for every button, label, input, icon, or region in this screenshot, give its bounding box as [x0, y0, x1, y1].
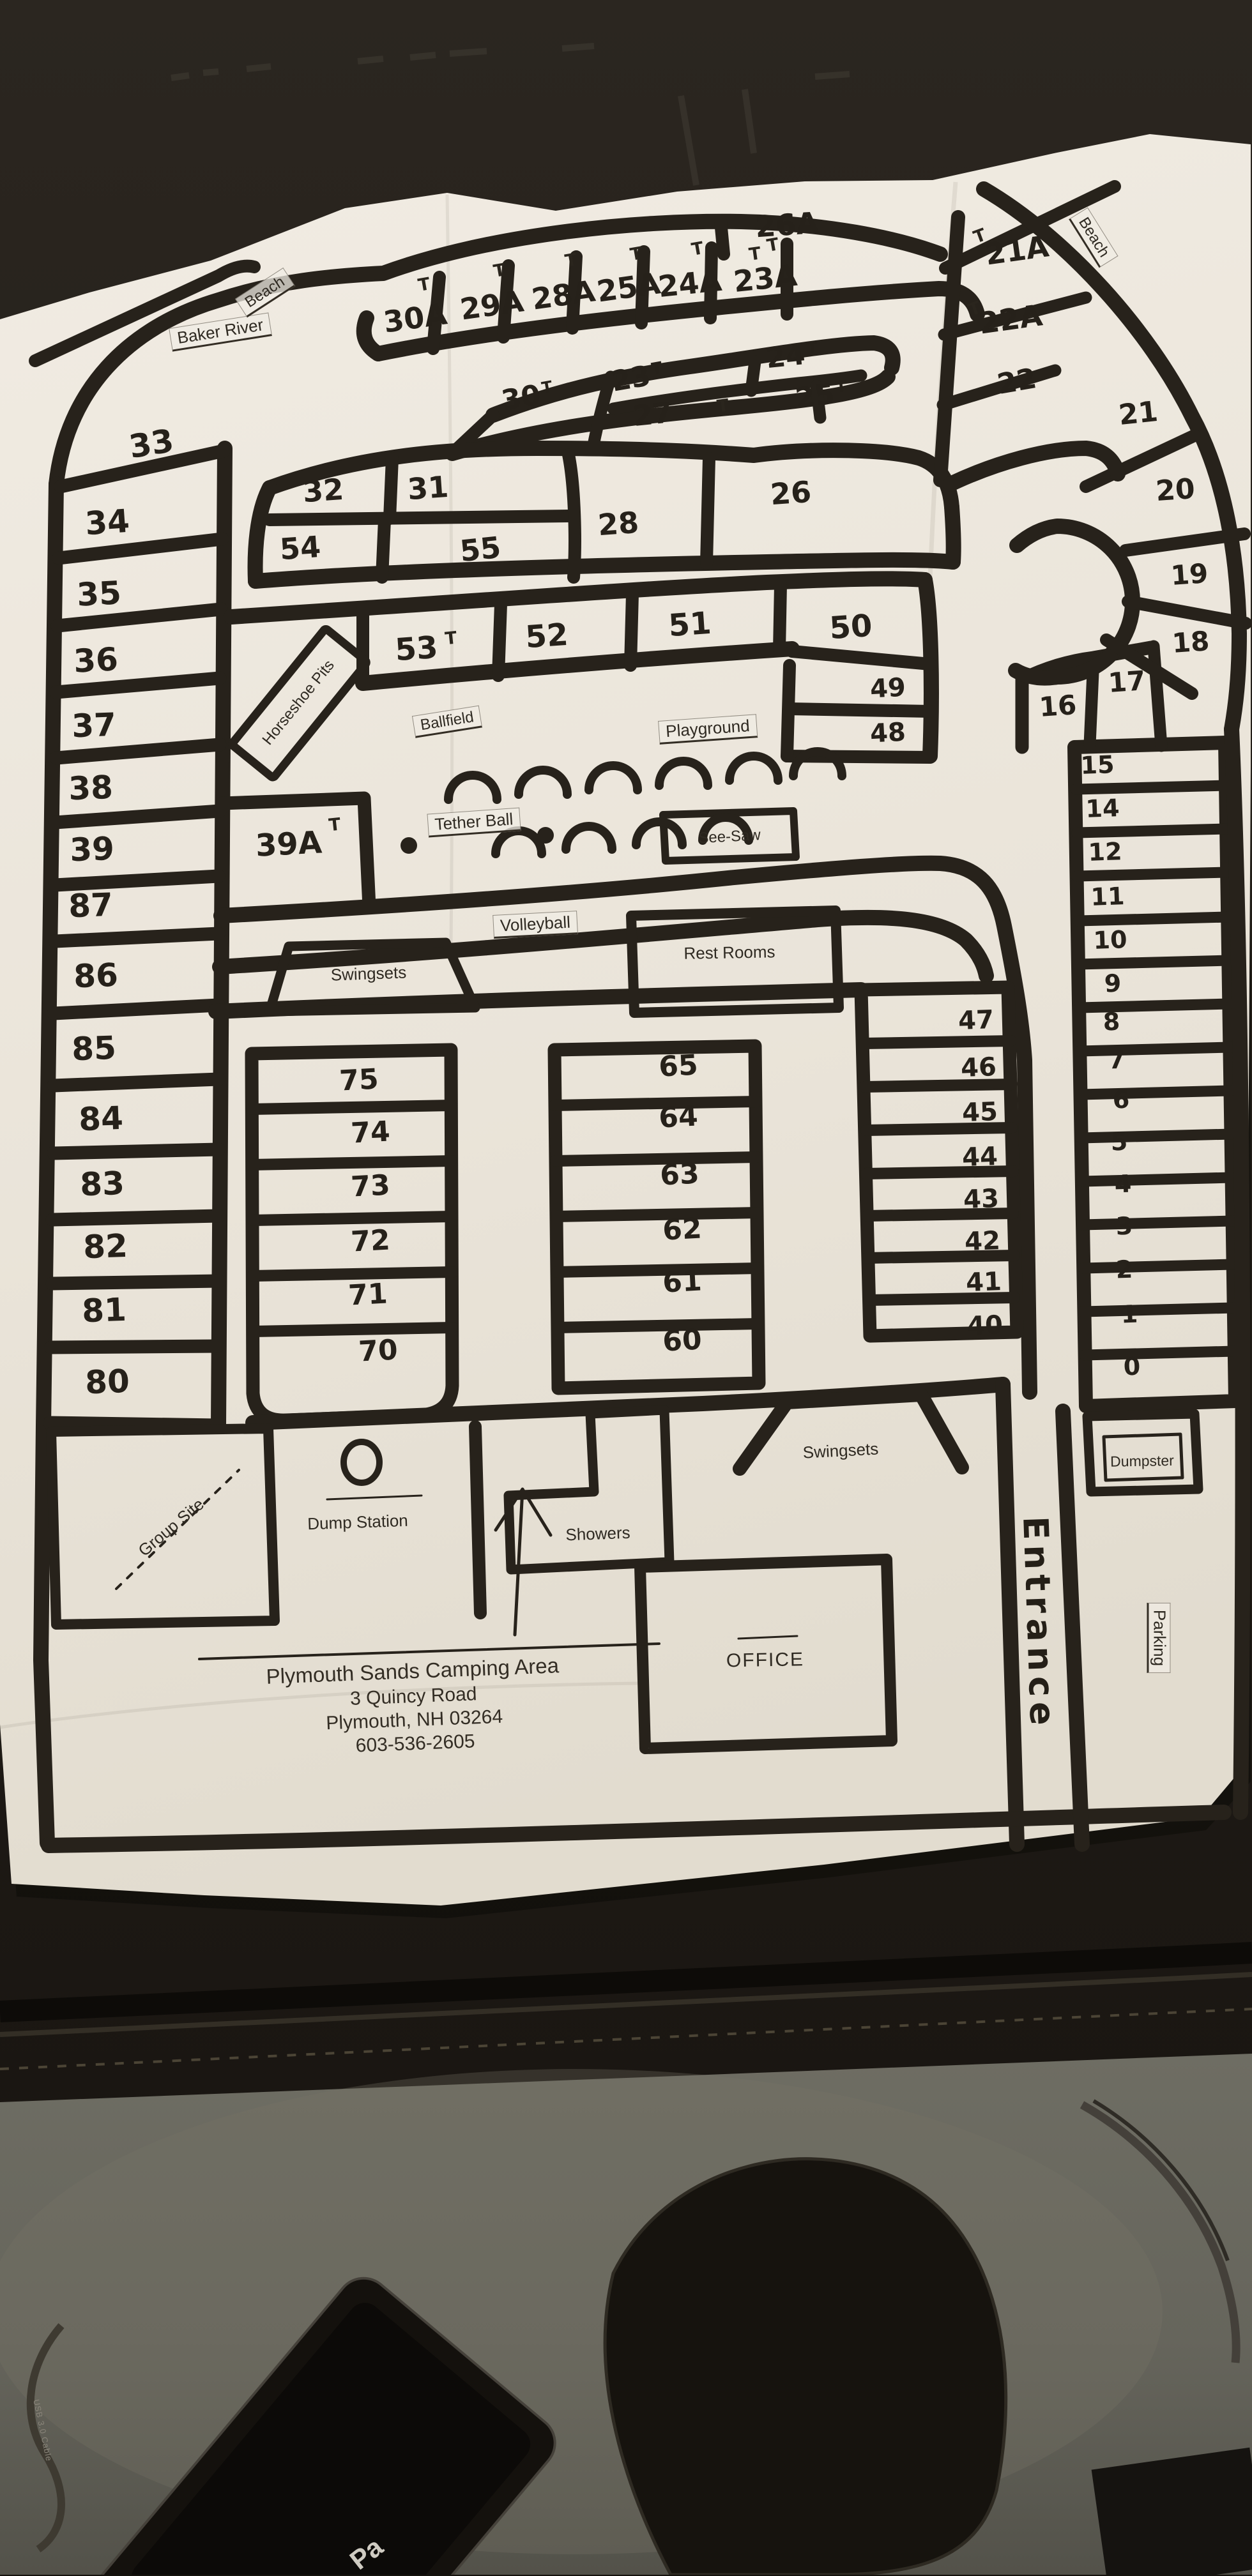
site-label-33: 33: [127, 425, 176, 463]
site-label-81: 81: [81, 1294, 126, 1327]
site-label-21A: 21A: [983, 231, 1050, 269]
site-label-25T: 25T: [793, 379, 849, 414]
site-label-38: 38: [68, 771, 113, 805]
label-parking: Parking: [1147, 1603, 1171, 1673]
site-label-53: 53: [394, 632, 439, 666]
site-label-29A: 29A: [458, 286, 525, 324]
site-label-55: 55: [459, 533, 502, 566]
tent-marker: T: [540, 378, 554, 397]
site-label-14: 14: [1085, 796, 1120, 821]
tent-marker: T: [417, 275, 432, 294]
site-label-63: 63: [659, 1160, 699, 1190]
site-number: 24: [765, 338, 807, 375]
site-label-87: 87: [68, 889, 113, 922]
site-label-50: 50: [828, 610, 873, 644]
label-beach-right: Beach: [1069, 208, 1118, 268]
label-volleyball: Volleyball: [492, 911, 578, 939]
site-label-26A: 26A: [754, 208, 820, 242]
tent-marker: T: [492, 261, 507, 280]
site-label-42: 42: [964, 1228, 1000, 1255]
site-label-8: 8: [1103, 1010, 1120, 1034]
site-label-32: 32: [302, 474, 344, 506]
site-label-48: 48: [869, 720, 906, 747]
site-label-64: 64: [658, 1102, 698, 1132]
site-number: 30: [499, 379, 543, 418]
site-label-85: 85: [71, 1032, 116, 1065]
label-office: OFFICE: [720, 1648, 811, 1673]
site-number: 25: [793, 377, 837, 415]
site-label-84: 84: [78, 1102, 123, 1135]
site-label-39: 39: [69, 833, 114, 866]
site-label-74: 74: [350, 1118, 390, 1148]
tent-marker: T: [748, 245, 762, 263]
tent-marker: T: [564, 251, 579, 270]
label-tether-ball: Tether Ball: [427, 808, 521, 838]
site-label-62: 62: [662, 1215, 702, 1245]
label-entrance: Entrance: [1018, 1516, 1060, 1731]
site-label-47: 47: [958, 1007, 994, 1034]
site-label-80: 80: [84, 1365, 130, 1398]
site-label-21: 21: [1117, 398, 1159, 430]
site-label-27: 27: [632, 399, 673, 431]
site-label-61: 61: [662, 1267, 702, 1297]
site-label-22A: 22A: [977, 300, 1044, 338]
site-label-1: 1: [1120, 1302, 1138, 1327]
site-label-28A: 28A: [530, 276, 597, 314]
label-swingsets-upper: Swingsets: [324, 962, 413, 986]
tent-marker: T: [716, 397, 730, 415]
cable-print-text: USB 3.0 Cable: [31, 2398, 54, 2462]
site-label-10: 10: [1093, 927, 1127, 953]
site-label-4: 4: [1114, 1172, 1132, 1197]
site-label-83: 83: [79, 1167, 125, 1201]
site-label-70: 70: [358, 1336, 398, 1366]
tent-marker: T: [972, 226, 989, 246]
site-label-6: 6: [1112, 1087, 1130, 1112]
site-label-39A: 39A: [255, 827, 323, 861]
label-group-site: Group Site: [129, 1490, 213, 1565]
tent-marker: T: [629, 245, 644, 264]
site-label-9: 9: [1104, 971, 1122, 996]
tent-marker: T: [650, 359, 664, 378]
site-label-60: 60: [662, 1326, 702, 1356]
label-showers: Showers: [559, 1522, 637, 1545]
site-label-12: 12: [1088, 839, 1122, 865]
site-label-40: 40: [966, 1312, 1003, 1339]
site-label-28: 28: [597, 508, 639, 540]
site-label-20: 20: [1155, 475, 1196, 506]
site-label-65: 65: [658, 1051, 698, 1081]
site-label-2: 2: [1115, 1257, 1133, 1282]
site-label-37: 37: [71, 709, 116, 742]
label-see-saw: See-Saw: [692, 825, 768, 849]
site-label-71: 71: [347, 1280, 388, 1310]
site-label-11: 11: [1090, 884, 1125, 909]
site-label-46: 46: [960, 1054, 996, 1081]
site-label-23A: 23A: [732, 261, 798, 296]
label-rest-rooms: Rest Rooms: [677, 941, 782, 964]
label-dump-station: Dump Station: [301, 1510, 415, 1534]
site-label-35: 35: [76, 577, 122, 611]
site-label-30T: 30T: [500, 379, 556, 416]
site-label-72: 72: [350, 1226, 390, 1256]
tent-marker: T: [835, 377, 848, 397]
site-label-43: 43: [963, 1186, 999, 1213]
site-label-25A: 25A: [595, 268, 662, 306]
site-label-52: 52: [524, 619, 569, 653]
address-block: Plymouth Sands Camping Area 3 Quincy Roa…: [169, 1649, 658, 1766]
site-label-36: 36: [73, 643, 119, 678]
site-label-30A: 30A: [381, 299, 448, 337]
site-label-31: 31: [406, 472, 449, 504]
site-label-3: 3: [1115, 1214, 1133, 1239]
label-dumpster: Dumpster: [1109, 1452, 1175, 1470]
site-label-34: 34: [84, 505, 131, 540]
site-label-22: 22: [995, 365, 1039, 399]
tent-marker: T: [806, 338, 818, 358]
site-label-5: 5: [1110, 1130, 1128, 1155]
site-label-82: 82: [82, 1230, 128, 1263]
site-label-86: 86: [73, 959, 118, 992]
label-playground: Playground: [658, 714, 758, 745]
label-horseshoe-pits: Horseshoe Pits: [254, 651, 343, 754]
tent-marker: T: [966, 299, 984, 319]
map-photo: Baker River Beach Beach Horseshoe Pits B…: [0, 0, 1252, 2575]
device-brand-partial: Pa: [344, 2531, 389, 2575]
site-label-18: 18: [1171, 628, 1210, 657]
site-label-19: 19: [1170, 560, 1209, 589]
map-labels: Baker River Beach Beach Horseshoe Pits B…: [0, 0, 1252, 2575]
site-number: 23: [609, 360, 653, 398]
site-label-17: 17: [1107, 667, 1146, 697]
label-beach-left: Beach: [235, 268, 295, 317]
label-swingsets-lower: Swingsets: [796, 1438, 885, 1464]
site-label-51: 51: [668, 608, 712, 642]
site-label-24A: 24A: [657, 266, 723, 301]
site-label-23T: 23T: [609, 360, 666, 397]
site-label-16: 16: [1038, 692, 1077, 721]
site-label-54: 54: [279, 532, 321, 564]
tent-marker: T: [444, 630, 457, 648]
label-baker-river: Baker River: [169, 312, 272, 351]
site-label-15: 15: [1080, 752, 1115, 778]
tent-marker: T: [328, 816, 341, 835]
site-label-49: 49: [869, 675, 906, 702]
site-label-24T: 24T: [765, 340, 820, 373]
site-label-41: 41: [965, 1269, 1002, 1296]
site-label-26: 26: [769, 477, 812, 509]
site-label-45: 45: [961, 1099, 998, 1126]
tent-marker: T: [691, 239, 705, 259]
label-ballfield: Ballfield: [412, 706, 482, 738]
site-label-7: 7: [1108, 1048, 1126, 1073]
site-label-73: 73: [350, 1171, 390, 1201]
site-label-0: 0: [1123, 1354, 1141, 1379]
site-label-75: 75: [339, 1065, 379, 1095]
site-label-44: 44: [961, 1144, 998, 1171]
